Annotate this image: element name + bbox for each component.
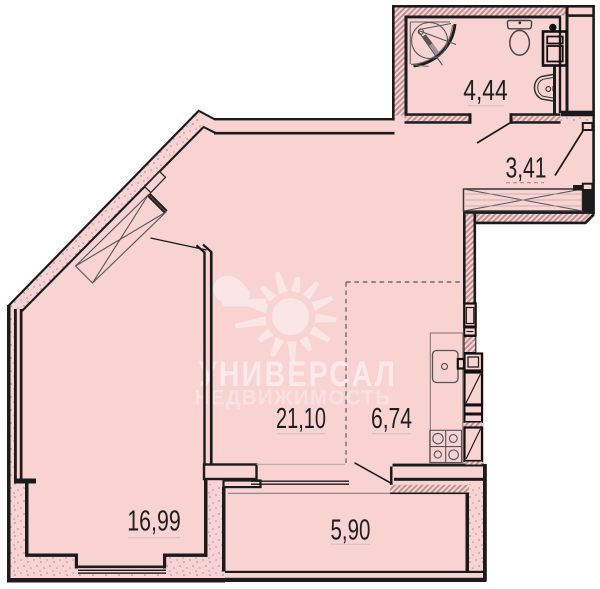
svg-text:5,90: 5,90 — [331, 515, 371, 546]
svg-text:21,10: 21,10 — [276, 404, 326, 435]
svg-text:4,44: 4,44 — [463, 76, 507, 107]
svg-text:6,74: 6,74 — [371, 403, 412, 435]
svg-text:3,41: 3,41 — [505, 152, 546, 184]
svg-text:16,99: 16,99 — [127, 506, 180, 538]
